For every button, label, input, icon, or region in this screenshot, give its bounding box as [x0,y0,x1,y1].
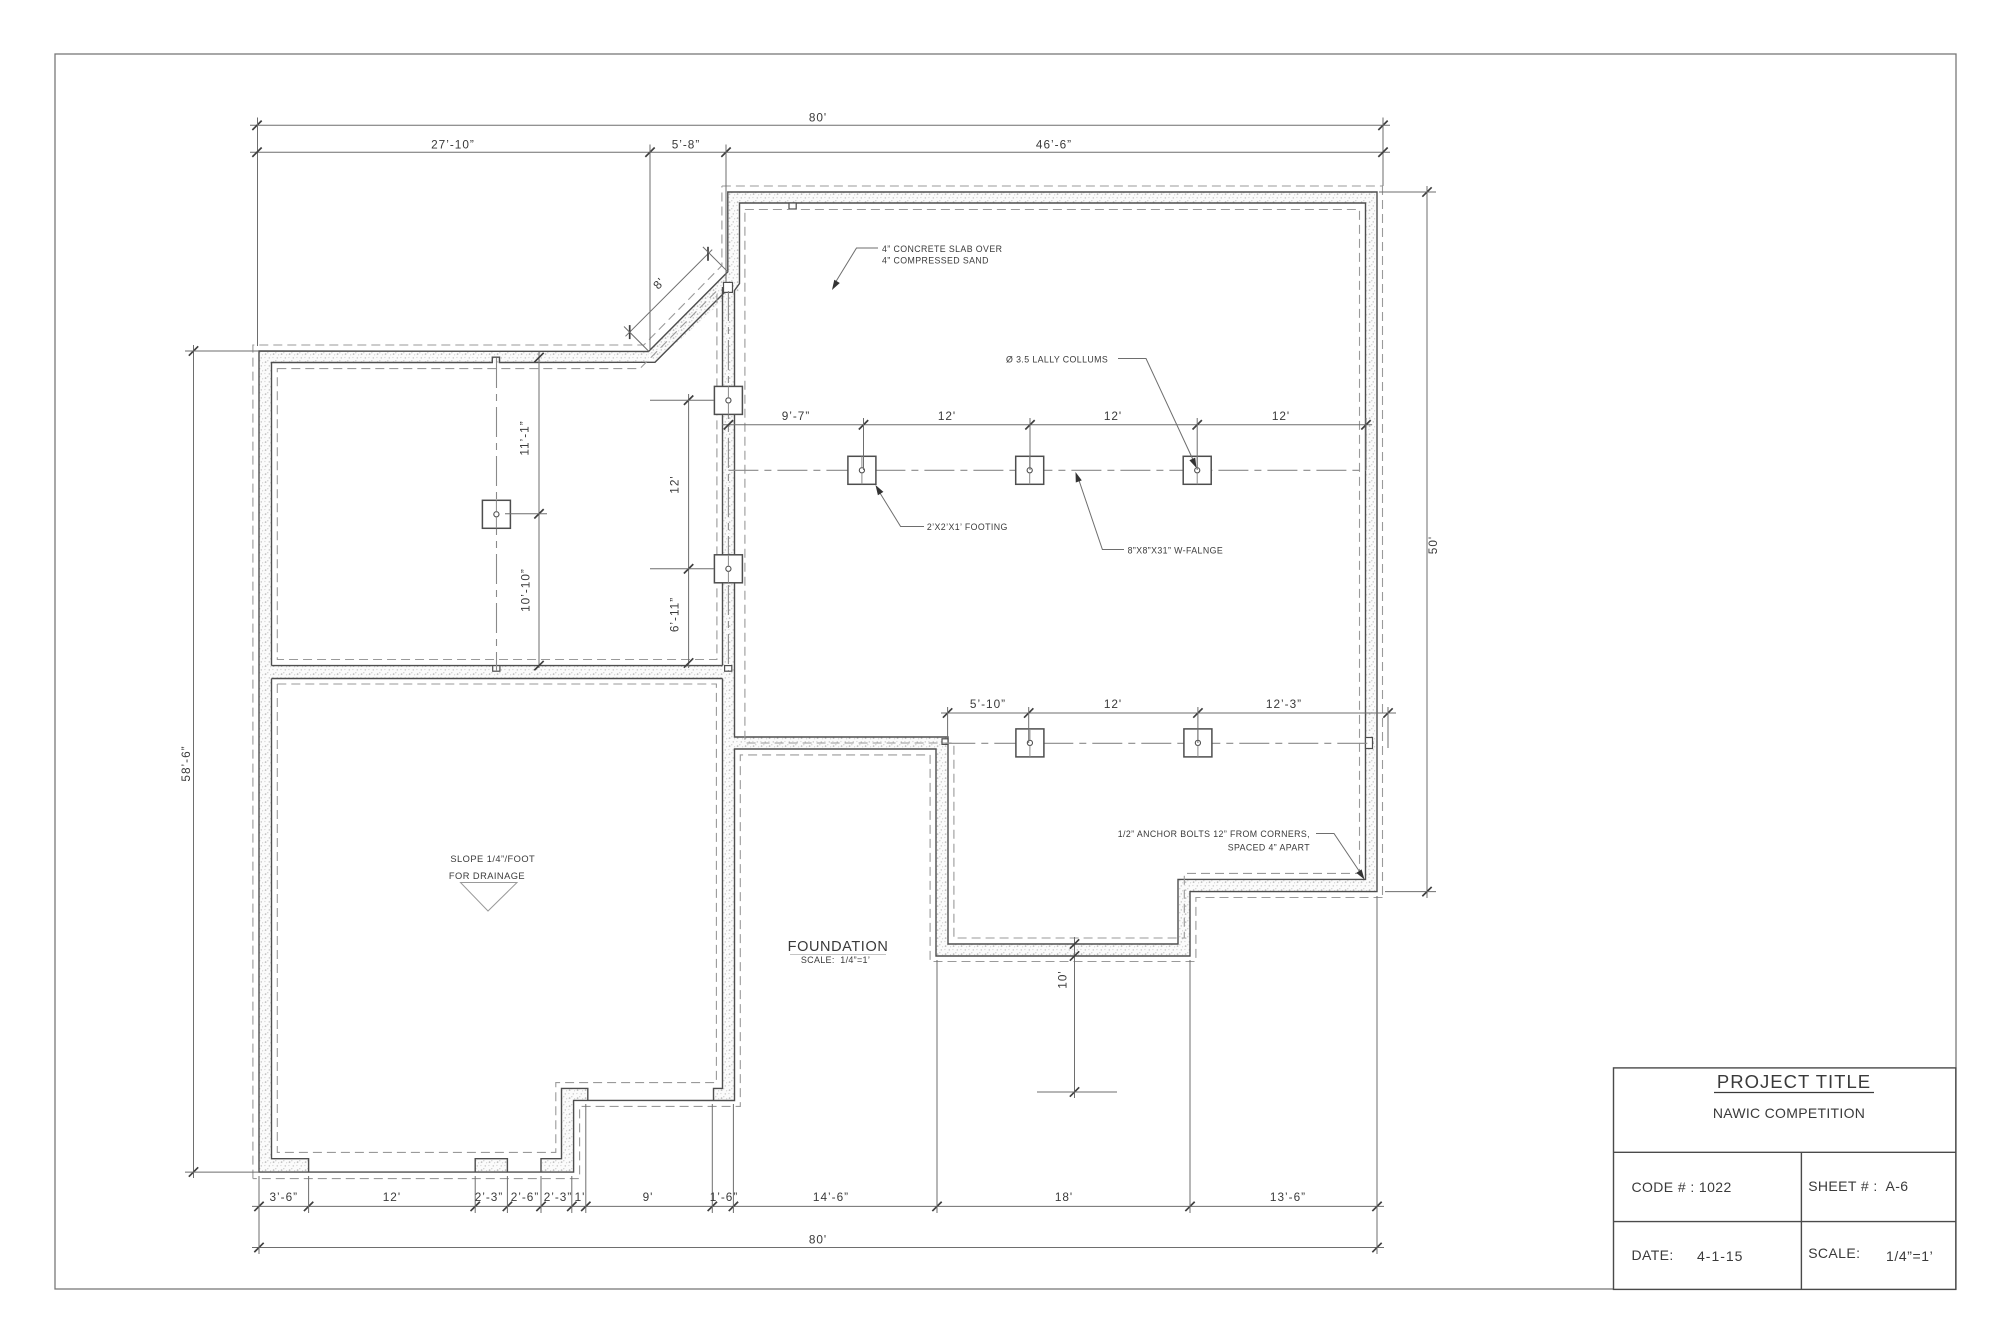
svg-text:50': 50' [1426,536,1440,554]
svg-text:SHEET # : A-6: SHEET # : A-6 [1808,1178,1908,1194]
svg-text:11’-1”: 11’-1” [518,420,532,455]
svg-text:2’-6”: 2’-6” [511,1190,540,1204]
svg-text:12': 12' [668,475,682,493]
svg-text:6’-11”: 6’-11” [668,597,682,632]
svg-text:46’-6”: 46’-6” [1036,138,1072,152]
svg-text:4” CONCRETE SLAB OVER: 4” CONCRETE SLAB OVER [882,244,1002,254]
svg-text:4-1-15: 4-1-15 [1697,1248,1743,1264]
svg-text:27’-10”: 27’-10” [431,138,475,152]
svg-text:9’-7”: 9’-7” [782,409,811,423]
svg-text:NAWIC COMPETITION: NAWIC COMPETITION [1713,1105,1865,1121]
svg-text:CODE # : 1022: CODE # : 1022 [1632,1179,1732,1195]
svg-text:3’-6”: 3’-6” [269,1190,298,1204]
svg-text:SLOPE 1/4”/FOOT: SLOPE 1/4”/FOOT [450,854,535,864]
svg-text:14’-6”: 14’-6” [813,1190,849,1204]
svg-text:12': 12' [938,409,956,423]
svg-text:SPACED 4” APART: SPACED 4” APART [1228,843,1310,853]
svg-text:1/2” ANCHOR BOLTS 12” FROM COR: 1/2” ANCHOR BOLTS 12” FROM CORNERS, [1118,829,1310,839]
svg-text:PROJECT TITLE: PROJECT TITLE [1717,1071,1871,1092]
svg-text:2’-3”: 2’-3” [544,1190,573,1204]
svg-text:10’-10”: 10’-10” [519,568,533,612]
svg-text:4” COMPRESSED SAND: 4” COMPRESSED SAND [882,256,989,266]
svg-text:1': 1' [575,1190,586,1204]
svg-text:9': 9' [643,1190,654,1204]
svg-text:DATE:: DATE: [1632,1247,1674,1263]
svg-text:8”X8”X31” W-FALNGE: 8”X8”X31” W-FALNGE [1128,546,1224,556]
svg-text:1’-6”: 1’-6” [710,1190,739,1204]
svg-text:2’-3”: 2’-3” [475,1190,504,1204]
svg-text:10': 10' [1056,970,1070,988]
svg-text:13’-6”: 13’-6” [1270,1190,1306,1204]
svg-text:Ø 3.5 LALLY COLLUMS: Ø 3.5 LALLY COLLUMS [1006,355,1108,365]
svg-text:12’-3”: 12’-3” [1266,697,1302,711]
svg-text:SCALE: 1/4”=1’: SCALE: 1/4”=1’ [801,955,870,965]
svg-text:FOR DRAINAGE: FOR DRAINAGE [449,871,525,881]
svg-text:12': 12' [1104,697,1122,711]
svg-text:5’-8”: 5’-8” [672,138,701,152]
svg-text:12': 12' [383,1190,401,1204]
svg-text:FOUNDATION: FOUNDATION [788,939,889,955]
svg-text:18': 18' [1055,1190,1073,1204]
svg-text:80': 80' [809,111,827,125]
svg-text:58’-6”: 58’-6” [179,745,193,781]
svg-text:SCALE:: SCALE: [1808,1245,1860,1261]
svg-text:2’X2’X1’ FOOTING: 2’X2’X1’ FOOTING [927,522,1008,532]
svg-text:12': 12' [1104,409,1122,423]
svg-text:5’-10”: 5’-10” [970,697,1006,711]
svg-text:80': 80' [809,1233,827,1247]
svg-text:12': 12' [1272,409,1290,423]
svg-text:1/4”=1’: 1/4”=1’ [1886,1248,1933,1264]
